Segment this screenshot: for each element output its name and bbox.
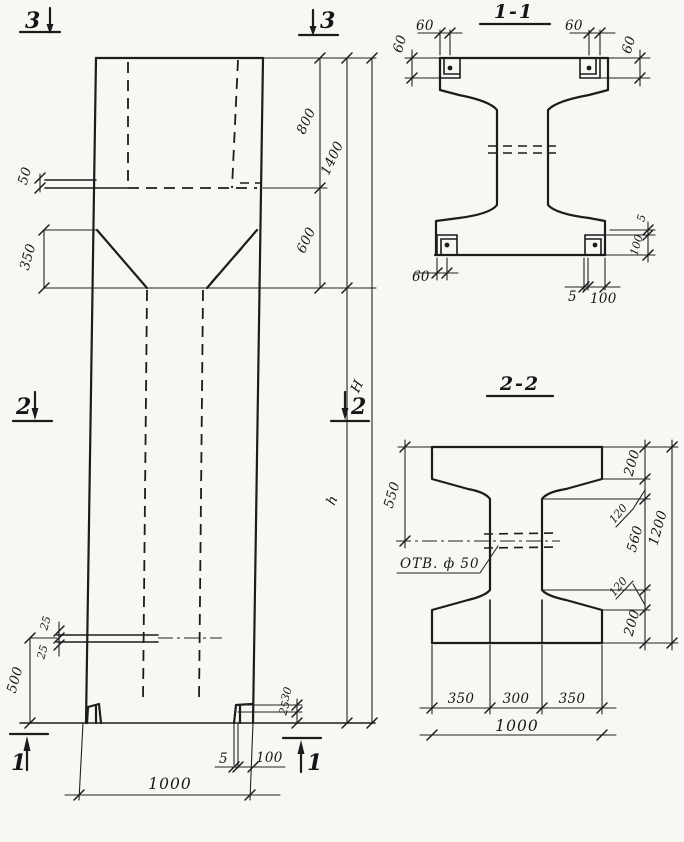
dim-s2-350-right: 350 (559, 691, 586, 707)
mark-2-left: 2 (15, 394, 31, 420)
elevation-hidden-lines (128, 60, 262, 702)
mark-1-right: 1 (307, 750, 322, 776)
dim-s2-1000: 1000 (495, 717, 538, 735)
section-2-2-dimension-lines (398, 440, 678, 740)
dim-corbel-350: 350 (17, 242, 40, 272)
mark-2-right: 2 (350, 394, 366, 420)
section-2-2: 2-2 ОТВ. ф 50 550 200 120 560 120 (381, 373, 678, 740)
technical-drawing-sheet: 50 350 25 25 500 800 1400 600 H h 30 25 … (0, 0, 684, 842)
section-1-1: 1-1 60 (390, 1, 655, 307)
dim-s1-tl-60: 60 (416, 18, 434, 34)
dim-head-1400: 1400 (318, 139, 348, 178)
dim-s2-350-left: 350 (448, 691, 475, 707)
dim-s2-1200: 1200 (646, 508, 671, 547)
dim-s1-tlv-60: 60 (390, 33, 410, 55)
dim-head-800: 800 (293, 106, 319, 137)
dim-s1-tr-60: 60 (565, 18, 583, 34)
dim-hole-top-25: 25 (37, 615, 54, 633)
section-2-2-title: 2-2 (499, 373, 540, 395)
mark-1-left: 1 (11, 750, 26, 776)
dim-shaft-h: h (323, 493, 341, 508)
dim-s1-r-5: 5 (634, 213, 648, 223)
dim-s1-trv-60: 60 (619, 34, 639, 56)
mark-3-right: 3 (320, 8, 335, 34)
section-2-2-dimension-labels: 550 200 120 560 120 200 1200 350 300 350… (381, 448, 671, 735)
elevation-dimension-labels: 50 350 25 25 500 800 1400 600 H h 30 25 … (4, 106, 367, 793)
dim-s2-560: 560 (624, 524, 647, 554)
dim-s2-300: 300 (503, 691, 530, 707)
dim-width-1000: 1000 (148, 775, 191, 793)
drawing-svg: 50 350 25 25 500 800 1400 600 H h 30 25 … (0, 0, 684, 842)
dim-hole-bottom-25: 25 (34, 644, 51, 662)
section-1-1-dimension-labels: 60 60 60 60 60 5 100 5 100 (390, 18, 649, 307)
dim-s2-200-top: 200 (621, 448, 644, 479)
dim-step-50: 50 (15, 165, 35, 187)
mark-3-left: 3 (25, 8, 40, 34)
hole-callout: ОТВ. ф 50 (397, 546, 498, 573)
dim-plate-100: 100 (256, 750, 283, 766)
dim-s1-b-100: 100 (590, 291, 617, 307)
dim-s1-bl-60: 60 (412, 269, 430, 285)
dim-plate-5: 5 (219, 751, 228, 767)
dim-s2-120-top: 120 (607, 502, 630, 526)
dim-s2-550: 550 (381, 480, 404, 510)
dim-s1-r-100: 100 (627, 233, 645, 257)
dim-s2-120-bottom: 120 (607, 575, 630, 599)
dim-s2-200-bottom: 200 (621, 608, 644, 639)
section-marks: 3 3 2 2 1 1 (10, 8, 369, 776)
section-1-1-title: 1-1 (494, 1, 534, 23)
dim-s1-b-5: 5 (568, 289, 577, 305)
elevation-outline (20, 58, 375, 723)
section-1-1-dimension-lines (405, 28, 655, 292)
dim-base-500: 500 (4, 665, 27, 695)
hole-label: ОТВ. ф 50 (400, 556, 480, 572)
dim-taper-600: 600 (293, 225, 319, 256)
embedded-plates (437, 58, 605, 255)
